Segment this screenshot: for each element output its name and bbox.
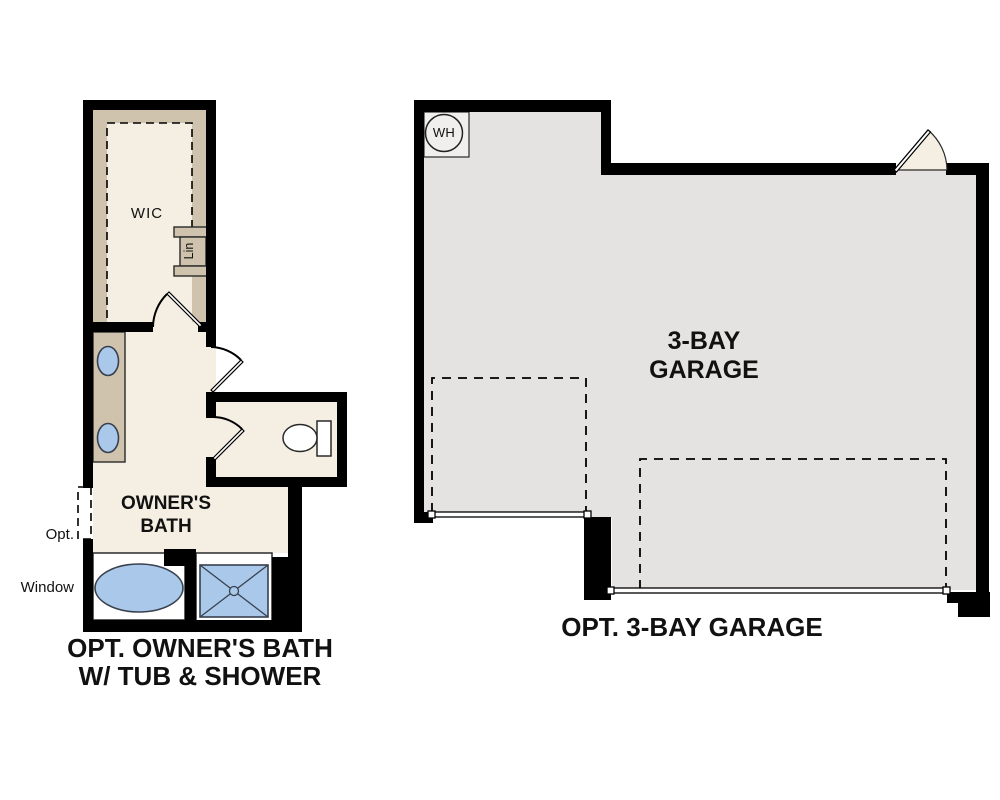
owners-bath-label-line1: OWNER'S	[96, 492, 236, 515]
wic-floor	[107, 123, 192, 322]
wall	[206, 457, 216, 487]
double-vanity	[93, 332, 125, 462]
wall	[83, 322, 153, 332]
water-heater-label: WH	[424, 125, 464, 140]
owners-bath-room-label: OWNER'S BATH	[96, 492, 236, 538]
house-entry-door-swing	[894, 130, 947, 172]
bath-plan-caption-line1: OPT. OWNER'S BATH	[40, 635, 360, 663]
wall	[976, 163, 989, 593]
wall	[601, 163, 896, 175]
garage-door-jamb	[584, 511, 591, 518]
optional-window-label: Opt. Window	[6, 491, 74, 614]
wic-room-label: WIC	[107, 205, 187, 222]
garage-door-jamb	[428, 511, 435, 518]
garage-door-jamb	[607, 587, 614, 594]
optional-window-label-line2: Window	[6, 579, 74, 597]
garage-door-single	[428, 511, 591, 518]
wall	[414, 100, 424, 523]
shower-pan	[196, 553, 272, 621]
wall	[288, 477, 302, 560]
sink-basin	[98, 424, 119, 453]
wall	[83, 539, 93, 632]
wall	[337, 392, 347, 487]
garage-door-panel	[433, 512, 586, 517]
floorplan-canvas: WIC Lin OWNER'S BATH Opt. Window OPT. OW…	[0, 0, 1000, 800]
sink-basin	[98, 347, 119, 376]
wall	[414, 100, 611, 112]
wall	[206, 392, 347, 402]
bath-plan-caption: OPT. OWNER'S BATH W/ TUB & SHOWER	[40, 635, 360, 690]
wall	[83, 100, 216, 110]
wall	[83, 100, 93, 488]
wall	[206, 100, 216, 347]
garage-door-jamb	[943, 587, 950, 594]
owners-bath-plan	[78, 100, 347, 632]
toilet-tank	[317, 421, 331, 456]
garage-room-label: 3-BAY GARAGE	[604, 327, 804, 385]
garage-door-double	[607, 587, 950, 594]
toilet-bowl	[283, 425, 317, 452]
tub-basin	[95, 564, 183, 612]
shower-drain	[230, 587, 239, 596]
wall	[164, 549, 196, 566]
wall	[958, 592, 990, 617]
wall	[206, 392, 216, 418]
garage-room-label-line1: 3-BAY	[604, 327, 804, 356]
garage-door-panel	[611, 588, 946, 593]
owners-bath-label-line2: BATH	[96, 515, 236, 538]
bath-plan-caption-line2: W/ TUB & SHOWER	[40, 663, 360, 691]
optional-window-label-line1: Opt.	[6, 526, 74, 544]
garage-room-label-line2: GARAGE	[604, 356, 804, 385]
garage-plan-caption: OPT. 3-BAY GARAGE	[532, 612, 852, 643]
linen-shelf-bottom	[174, 266, 208, 276]
optional-window	[78, 487, 91, 539]
linen-closet-label: Lin	[182, 236, 204, 266]
wall	[206, 477, 347, 487]
wall	[272, 557, 302, 632]
